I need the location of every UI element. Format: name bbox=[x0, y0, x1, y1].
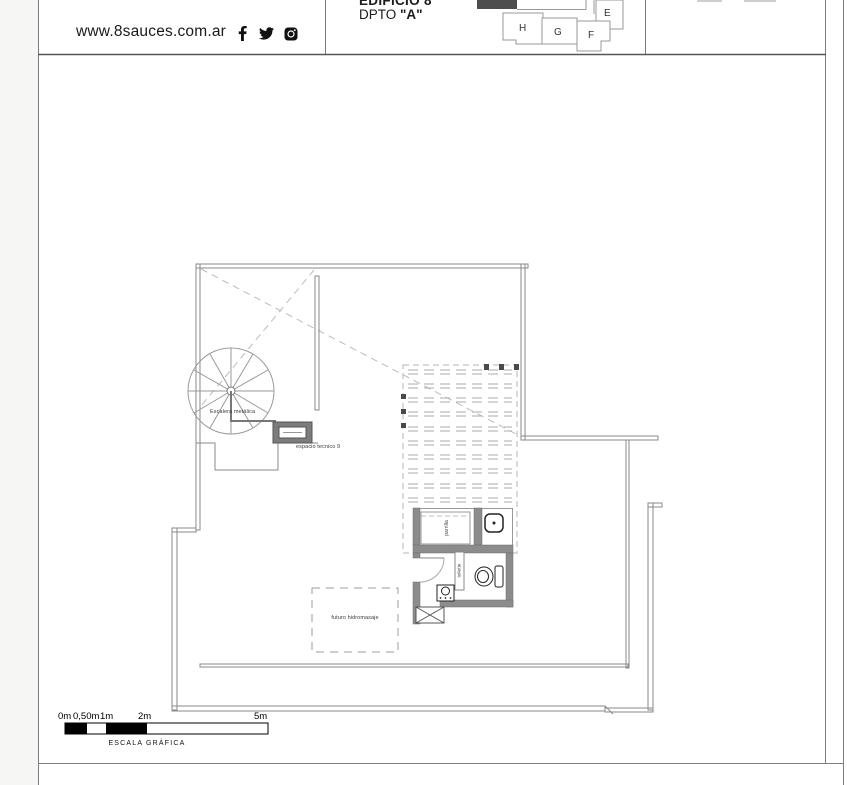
shaft-hatched bbox=[416, 607, 444, 623]
unit-title: DPTO "A" bbox=[359, 7, 423, 22]
spiral-stair bbox=[188, 348, 276, 434]
keyplan-unit-g-label: G bbox=[554, 27, 562, 38]
bathroom-block bbox=[413, 508, 513, 624]
scale-caption: ESCALA GRÁFICA bbox=[104, 740, 190, 747]
stair-label: Escalera metálica bbox=[210, 409, 255, 415]
scale-tick-1m: 1m bbox=[100, 711, 113, 722]
scale-bar-graphic bbox=[65, 723, 268, 734]
keyplan-highlight-unit-a bbox=[477, 0, 517, 9]
scale-tick-2m: 2m bbox=[138, 711, 151, 722]
tech-space-box bbox=[273, 422, 312, 443]
tech-space-label: espacio tecnico 9 bbox=[296, 444, 340, 450]
toilet-fixture bbox=[475, 566, 503, 587]
keyplan bbox=[477, 0, 623, 51]
keyplan-unit-f-label: F bbox=[588, 30, 594, 41]
toilette-label: toilette bbox=[457, 557, 462, 585]
scale-tick-5m: 5m bbox=[254, 711, 267, 722]
keyplan-unit-h-label: H bbox=[519, 23, 526, 34]
grill-label: parrilla bbox=[444, 511, 450, 545]
social-icons bbox=[235, 26, 298, 41]
scale-tick-050m: 0,50m bbox=[73, 711, 99, 722]
scale-tick-0m: 0m bbox=[58, 711, 71, 722]
drawing-sheet bbox=[0, 0, 847, 785]
unit-prefix: DPTO bbox=[359, 7, 396, 22]
brochure-page: { "header": { "website": "www.8sauces.co… bbox=[0, 0, 847, 785]
walls bbox=[172, 264, 662, 714]
keyplan-unit-e-label: E bbox=[604, 8, 611, 19]
facebook-icon[interactable] bbox=[235, 26, 250, 41]
future-jacuzzi-label: futuro hidromasaje bbox=[312, 615, 398, 621]
keyplan-connector bbox=[517, 0, 586, 10]
sink-fixture bbox=[437, 585, 454, 601]
unit-name: "A" bbox=[400, 7, 423, 22]
website-url[interactable]: www.8sauces.com.ar bbox=[76, 23, 226, 41]
twitter-icon[interactable] bbox=[259, 26, 274, 41]
instagram-icon[interactable] bbox=[283, 26, 298, 41]
floor-plan bbox=[172, 264, 662, 714]
